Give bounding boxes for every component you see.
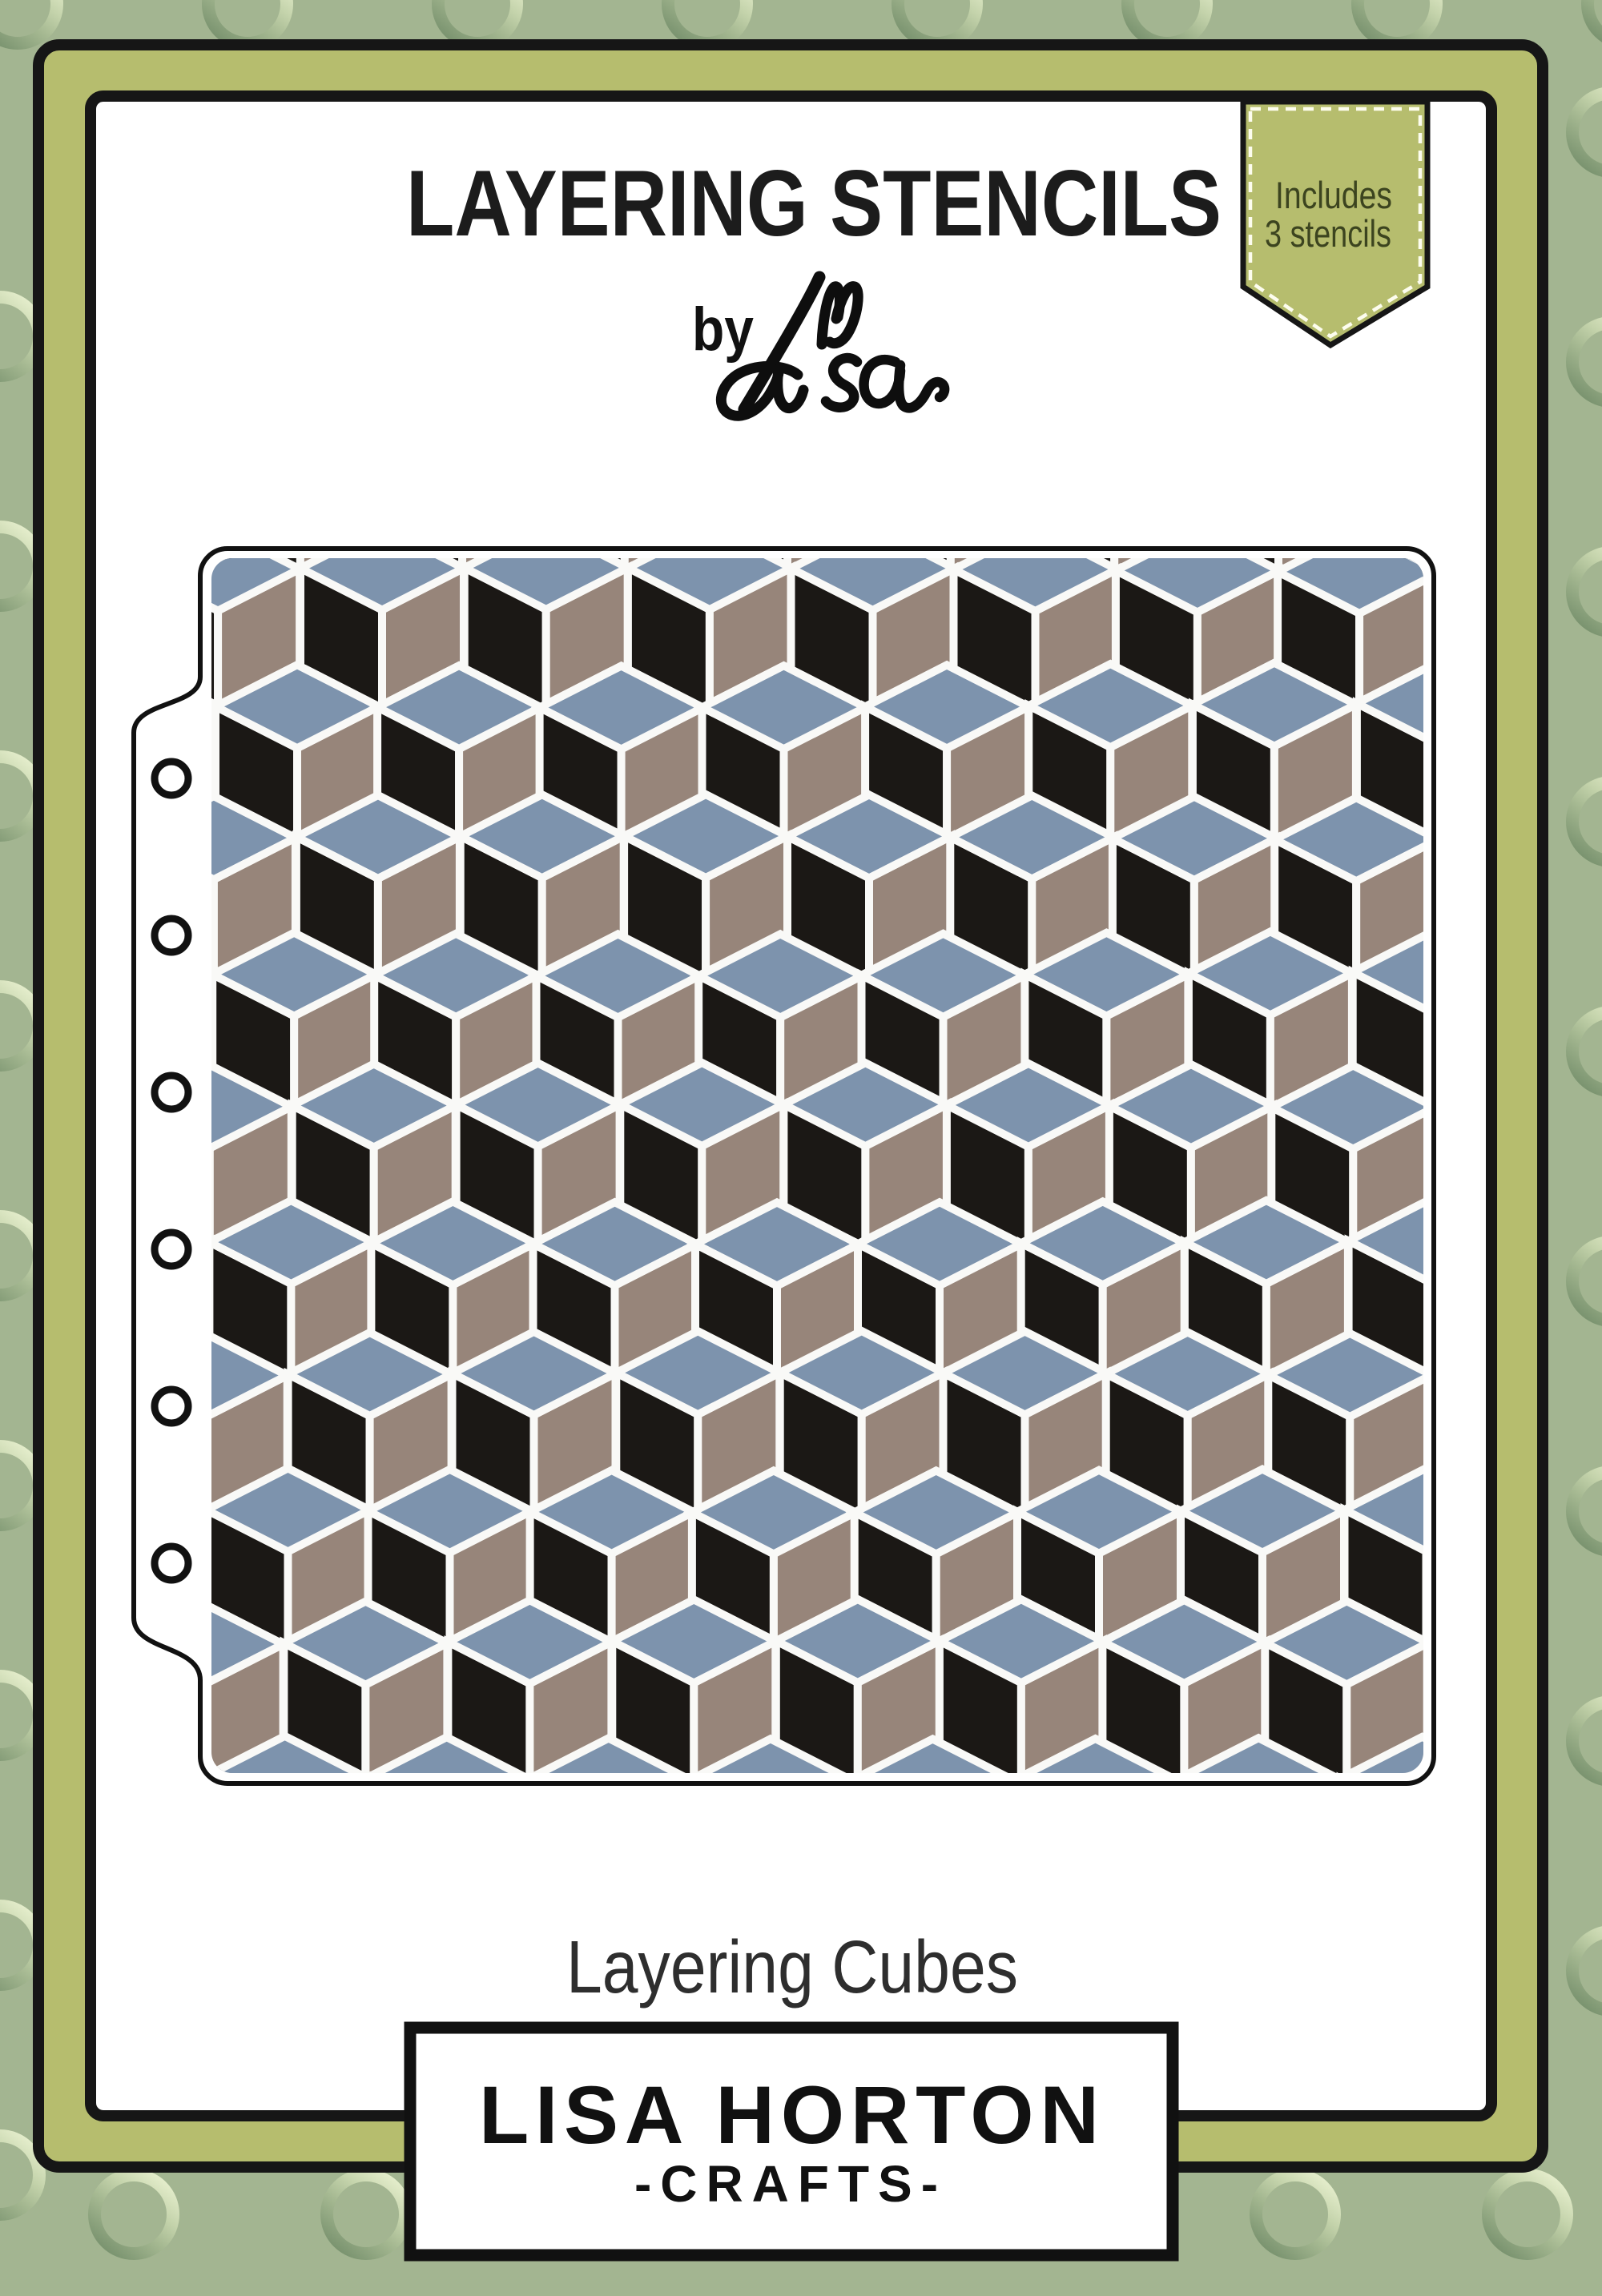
svg-text:-CRAFTS-: -CRAFTS- (634, 2155, 938, 2213)
svg-text:LISA HORTON: LISA HORTON (479, 2069, 1099, 2161)
svg-text:by: by (692, 296, 754, 364)
svg-text:Includes: Includes (1275, 174, 1392, 216)
svg-text:LAYERING STENCILS: LAYERING STENCILS (406, 151, 1222, 255)
svg-text:Layering Cubes: Layering Cubes (566, 1925, 1018, 2008)
svg-text:3 stencils: 3 stencils (1265, 212, 1391, 255)
